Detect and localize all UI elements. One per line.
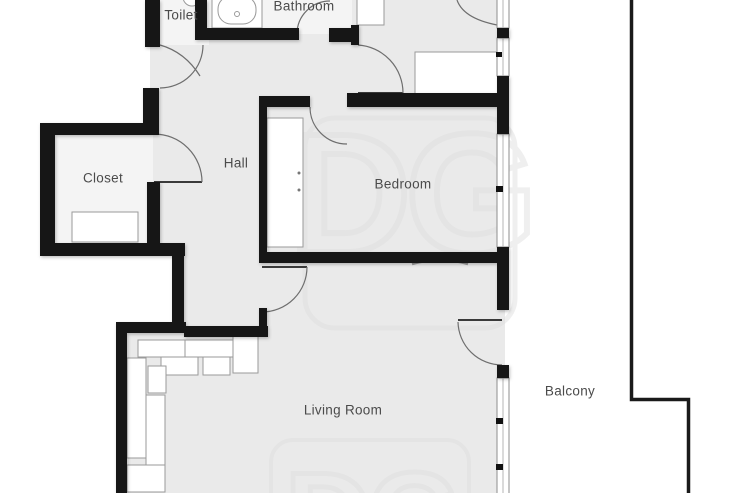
wall-segment [344,28,352,41]
window [496,378,509,493]
window [496,134,509,247]
room-label-bathroom: Bathroom [274,0,335,14]
wall-segment [145,0,160,47]
wall-segment [40,123,159,135]
wall-segment [497,247,509,310]
wall-segment [40,243,185,256]
dresser [72,212,138,242]
wall-segment [259,308,267,332]
kitchen-unit [161,357,198,375]
wall-segment [351,25,359,45]
bathroom-sink [212,0,262,28]
wall-segment [497,76,509,134]
wall-segment [116,322,127,493]
window [497,0,509,28]
wall-segment [143,88,159,135]
kitchen-unit [146,395,165,465]
room-hall-lower-floor [172,250,267,337]
room-hall-corridor-floor [150,100,267,250]
washing-machine [357,0,384,25]
kitchen-unit [233,335,258,373]
kitchen-unit [127,465,165,492]
wall-segment [184,326,268,337]
balcony-railing [632,0,689,493]
kitchen-unit [185,340,233,357]
room-label-closet: Closet [83,171,123,186]
wall-segment [40,123,55,256]
wardrobe [267,118,303,247]
room-label-toilet: Toilet [164,8,197,23]
room-label-living-room: Living Room [304,403,382,418]
window [496,38,509,76]
wall-segment [347,93,507,107]
wall-segment [259,96,267,263]
room-label-bedroom: Bedroom [375,177,432,192]
room-label-hall: Hall [224,156,248,171]
watermark-text: DG [285,448,457,493]
floor-plan: DG DG [0,0,740,493]
wall-segment [259,252,507,263]
kitchen-unit [138,340,185,357]
room-label-balcony: Balcony [545,384,595,399]
wall-segment [497,28,509,38]
wall-segment [172,250,184,328]
wall-segment [195,28,299,40]
storage-cabinet [415,52,498,97]
kitchen-unit [203,357,230,375]
kitchen-unit [148,366,166,393]
windows [496,0,509,493]
wall-segment [497,365,509,378]
floor-plan-canvas: DG DG [0,0,740,493]
watermark-logo-bottom: DG [271,440,469,493]
kitchen-unit [127,358,146,458]
wall-segment [147,182,160,252]
